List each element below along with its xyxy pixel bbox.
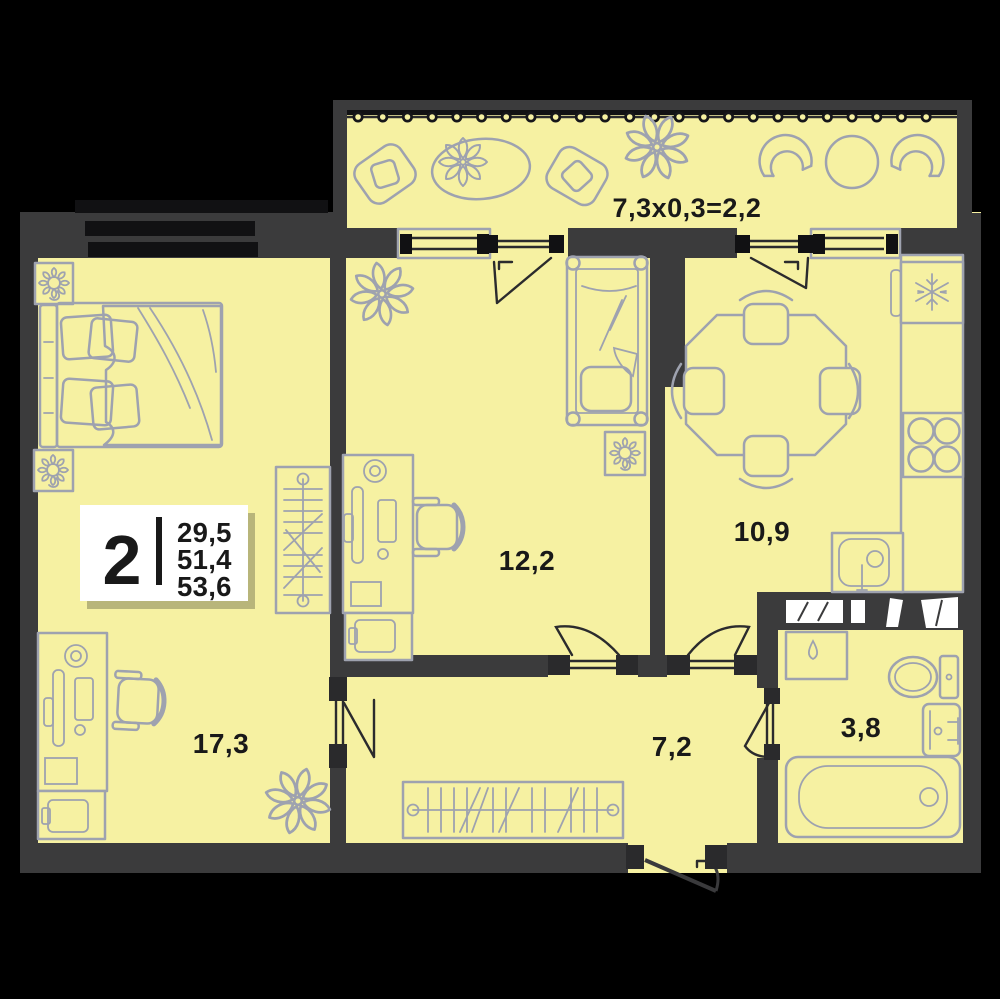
- kitchen-area-label: 10,9: [734, 516, 791, 547]
- badge-area-total: 53,6: [177, 571, 232, 602]
- kitchen-sink: [832, 533, 903, 592]
- fridge: [891, 262, 963, 323]
- bathroom-area-label: 3,8: [841, 712, 881, 743]
- hallway-area-label: 7,2: [652, 731, 692, 762]
- window-room2: [398, 229, 490, 258]
- wardrobe-hallway: [403, 782, 623, 838]
- bedside-table: [605, 432, 645, 475]
- desk-room2: [343, 455, 413, 613]
- balcony-area-label: 7,3x0,3=2,2: [613, 193, 762, 223]
- info-badge: 2 29,5 51,4 53,6: [80, 505, 255, 609]
- bedroom-area-label: 17,3: [193, 728, 250, 759]
- desk-bedroom: [38, 633, 107, 791]
- badge-rooms-count: 2: [103, 521, 142, 599]
- printer-stand: [345, 613, 412, 660]
- bathtub: [786, 757, 960, 837]
- wardrobe-bedroom: [276, 467, 330, 613]
- room2-area-label: 12,2: [499, 545, 556, 576]
- washing-machine: [786, 632, 847, 679]
- printer-stand: [38, 791, 105, 839]
- bathroom-sink: [923, 704, 960, 756]
- stove: [903, 413, 963, 477]
- window-kitchen: [811, 229, 900, 258]
- floor-plan: 17,3: [0, 0, 1000, 999]
- nightstand: [35, 263, 73, 304]
- badge-divider: [156, 517, 162, 585]
- nightstand: [34, 450, 73, 491]
